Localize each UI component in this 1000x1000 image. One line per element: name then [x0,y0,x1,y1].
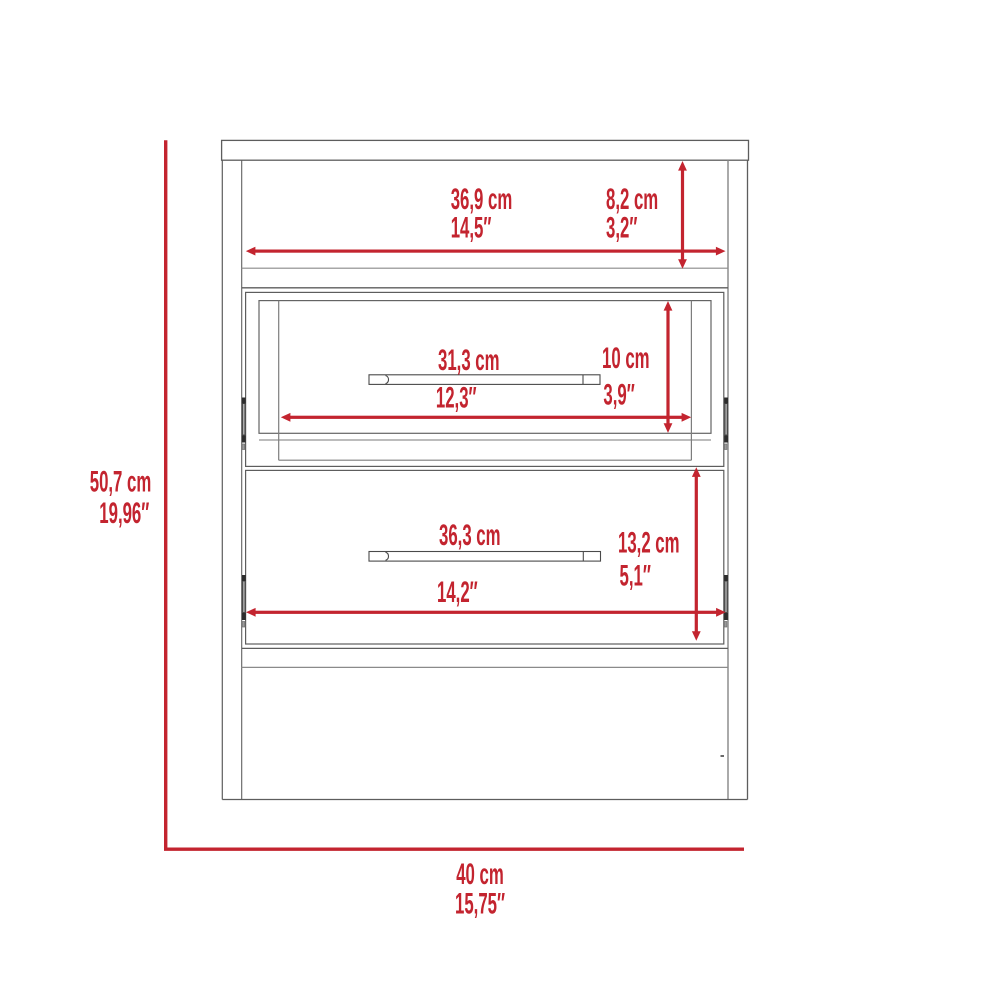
svg-text:10 cm: 10 cm [602,342,650,375]
svg-text:14,5″: 14,5″ [451,212,492,245]
svg-text:3,9″: 3,9″ [603,379,634,412]
svg-text:12,3″: 12,3″ [436,382,477,415]
svg-text:36,3 cm: 36,3 cm [439,519,501,552]
svg-text:31,3 cm: 31,3 cm [438,344,500,377]
svg-text:5,1″: 5,1″ [620,560,651,593]
svg-text:40 cm: 40 cm [456,858,504,891]
svg-text:14,2″: 14,2″ [437,576,478,609]
svg-text:13,2 cm: 13,2 cm [618,527,680,560]
svg-text:15,75″: 15,75″ [455,888,505,921]
svg-text:3,2″: 3,2″ [606,212,637,245]
svg-text:19,96″: 19,96″ [99,497,149,530]
svg-text:50,7 cm: 50,7 cm [90,466,152,499]
